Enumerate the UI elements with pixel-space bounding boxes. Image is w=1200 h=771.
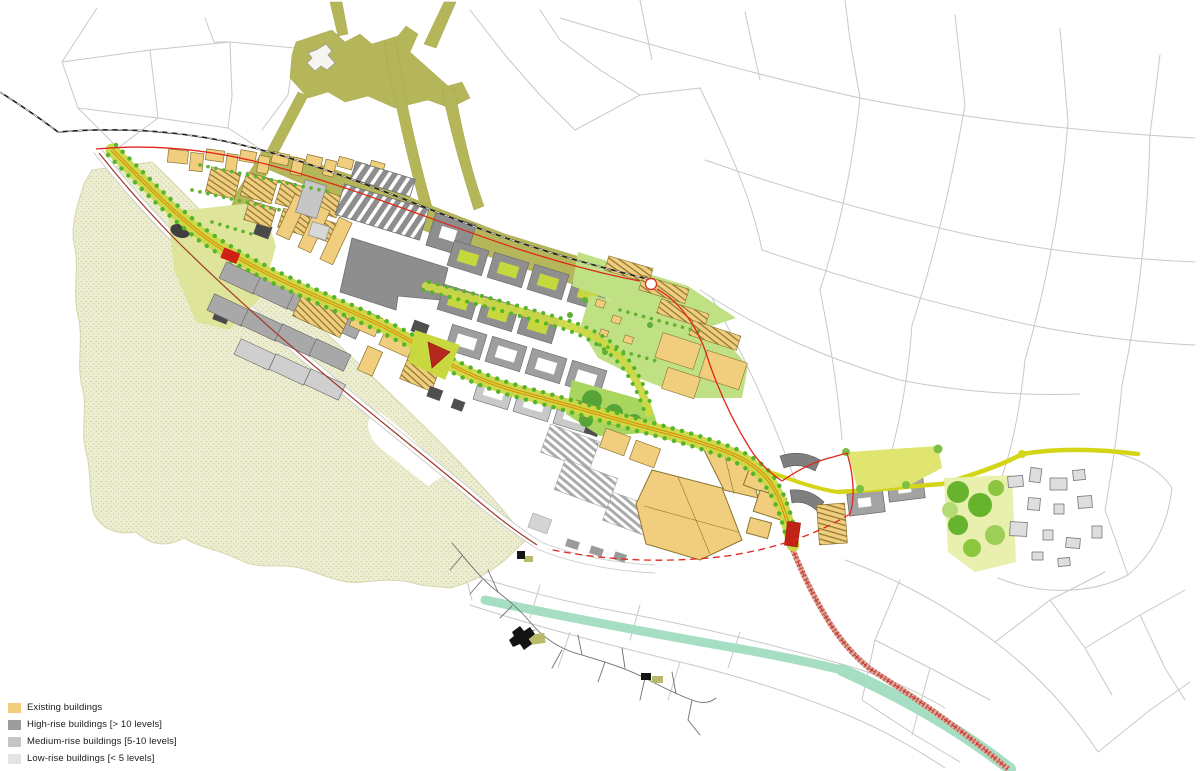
- church-landmark: [509, 626, 546, 650]
- legend: Existing buildings High-rise buildings […: [8, 699, 177, 767]
- river: [485, 600, 1010, 769]
- masterplan-canvas: [0, 0, 1200, 771]
- hamlet-landmark-north: [517, 551, 533, 562]
- legend-label-low-rise: Low-rise buildings [< 5 levels]: [27, 753, 154, 764]
- legend-item-existing: Existing buildings: [8, 699, 177, 716]
- east-park: [942, 475, 1016, 572]
- east-building-cluster: [1008, 467, 1102, 566]
- mixed-striped-road: [790, 543, 1008, 769]
- legend-swatch-low-rise: [8, 754, 21, 764]
- legend-swatch-high-rise: [8, 720, 21, 730]
- road-node: [1018, 450, 1026, 458]
- legend-item-medium-rise: Medium-rise buildings [5-10 levels]: [8, 733, 177, 750]
- legend-label-high-rise: High-rise buildings [> 10 levels]: [27, 719, 162, 730]
- legend-label-existing: Existing buildings: [27, 702, 102, 713]
- roundabout: [646, 279, 657, 290]
- legend-swatch-medium-rise: [8, 737, 21, 747]
- legend-item-high-rise: High-rise buildings [> 10 levels]: [8, 716, 177, 733]
- legend-item-low-rise: Low-rise buildings [< 5 levels]: [8, 750, 177, 767]
- legend-swatch-existing: [8, 703, 21, 713]
- legend-label-medium-rise: Medium-rise buildings [5-10 levels]: [27, 736, 177, 747]
- masterplan-map: Existing buildings High-rise buildings […: [0, 0, 1200, 771]
